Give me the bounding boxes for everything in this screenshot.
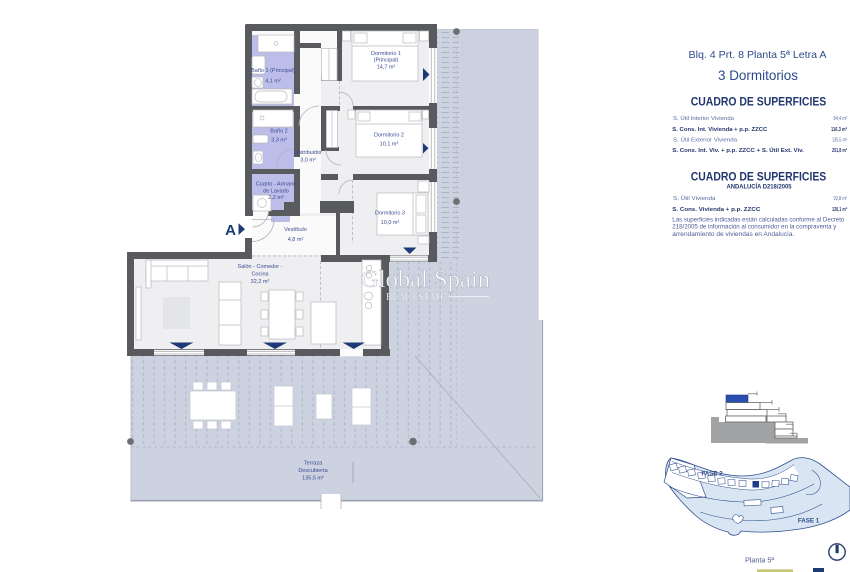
- svg-text:CUADRO DE SUPERFICIES: CUADRO DE SUPERFICIES: [691, 94, 827, 108]
- svg-text:2,2 m²: 2,2 m²: [268, 195, 284, 201]
- svg-text:32,2 m²: 32,2 m²: [251, 279, 270, 285]
- svg-text:Dormitorio 3: Dormitorio 3: [375, 211, 405, 217]
- svg-text:Terraza: Terraza: [304, 461, 323, 467]
- svg-text:S. Útil Exterior Vivienda: S. Útil Exterior Vivienda: [673, 136, 738, 143]
- svg-text:4,8 m²: 4,8 m²: [288, 237, 304, 243]
- svg-text:Distribuidor: Distribuidor: [294, 150, 322, 156]
- svg-text:Las superficies indicadas está: Las superficies indicadas están calculad…: [672, 216, 844, 223]
- svg-text:10,1 m²: 10,1 m²: [380, 142, 399, 148]
- svg-text:Cuarto - Armario: Cuarto - Armario: [256, 182, 296, 188]
- svg-text:S. Cons. Int. Viv. + p.p. ZZCC: S. Cons. Int. Viv. + p.p. ZZCC + S. Útil…: [672, 147, 804, 154]
- svg-text:S. Útil Vivienda: S. Útil Vivienda: [673, 195, 716, 202]
- svg-text:Planta 5ª: Planta 5ª: [745, 556, 774, 565]
- svg-text:14,7 m²: 14,7 m²: [377, 65, 396, 71]
- svg-text:Blq. 4 Prt. 8 Planta 5ª Letra: Blq. 4 Prt. 8 Planta 5ª Letra A: [689, 49, 827, 61]
- svg-text:REAL ESTATE: REAL ESTATE: [386, 292, 446, 303]
- svg-text:FASE 1: FASE 1: [798, 518, 820, 525]
- svg-text:de Lavado: de Lavado: [263, 189, 289, 195]
- svg-text:Global Spain: Global Spain: [361, 267, 490, 293]
- svg-text:arrendamiento de viviendas en: arrendamiento de viviendas en Andalucía.: [672, 231, 794, 238]
- svg-text:Cocina: Cocina: [251, 272, 269, 278]
- svg-text:3,0 m²: 3,0 m²: [300, 158, 316, 164]
- svg-text:92,8 m²: 92,8 m²: [834, 196, 848, 202]
- svg-text:10,0 m²: 10,0 m²: [381, 220, 400, 226]
- svg-text:116,3 m²: 116,3 m²: [831, 126, 847, 133]
- svg-text:(Principal): (Principal): [374, 58, 399, 64]
- svg-text:135,5 m²: 135,5 m²: [302, 475, 324, 481]
- svg-text:126,1 m²: 126,1 m²: [832, 206, 847, 213]
- svg-text:135,5 m²: 135,5 m²: [832, 137, 847, 143]
- svg-text:Baño 2: Baño 2: [270, 129, 287, 135]
- svg-text:3,3 m²: 3,3 m²: [271, 138, 287, 144]
- svg-text:Descubierta: Descubierta: [298, 468, 328, 474]
- svg-text:S. Útil Interior Vivienda: S. Útil Interior Vivienda: [673, 115, 735, 122]
- svg-text:Dormitorio 2: Dormitorio 2: [374, 133, 404, 139]
- svg-text:S. Cons. Vivienda + p.p. ZZCC: S. Cons. Vivienda + p.p. ZZCC: [672, 207, 760, 213]
- svg-text:251,8 m²: 251,8 m²: [832, 147, 847, 154]
- svg-text:FASE 2: FASE 2: [701, 471, 723, 478]
- svg-text:CUADRO DE SUPERFICIES: CUADRO DE SUPERFICIES: [691, 169, 827, 183]
- svg-text:Salón - Comedor -: Salón - Comedor -: [238, 264, 283, 270]
- svg-text:ANDALUCÍA D218/2005: ANDALUCÍA D218/2005: [727, 181, 792, 190]
- svg-text:A: A: [225, 222, 236, 239]
- svg-text:84,4 m²: 84,4 m²: [834, 116, 848, 122]
- svg-text:Vestíbulo: Vestíbulo: [284, 227, 307, 233]
- svg-text:Dormitorio 1: Dormitorio 1: [371, 51, 401, 57]
- svg-text:3 Dormitorios: 3 Dormitorios: [718, 67, 798, 83]
- svg-text:4,1 m²: 4,1 m²: [265, 79, 281, 85]
- svg-text:Baño 1 (Principal): Baño 1 (Principal): [251, 68, 295, 74]
- svg-text:218/2005 de información al con: 218/2005 de información al consumidor en…: [672, 224, 837, 231]
- svg-text:S. Cons. Int. Vivienda + p.p.: S. Cons. Int. Vivienda + p.p. ZZCC: [672, 127, 767, 133]
